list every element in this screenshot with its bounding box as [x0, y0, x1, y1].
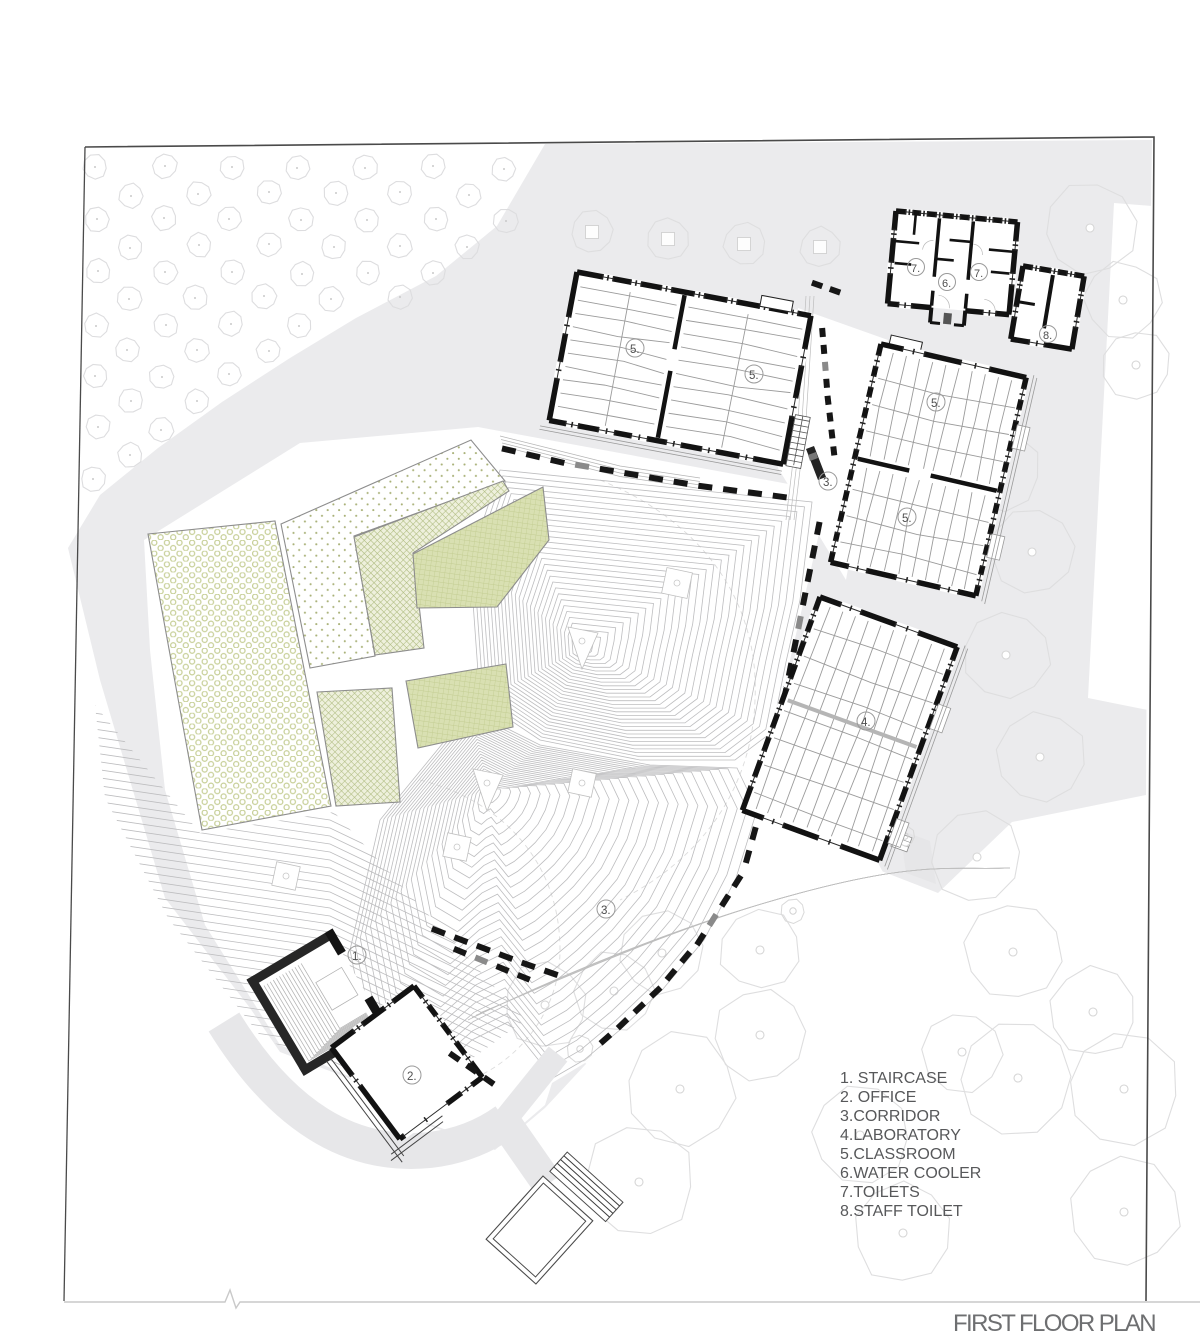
svg-text:5.: 5. — [902, 513, 912, 525]
svg-text:FIRST FLOOR PLAN: FIRST FLOOR PLAN — [953, 1310, 1155, 1337]
svg-text:4.LABORATORY: 4.LABORATORY — [840, 1127, 961, 1144]
svg-text:3.CORRIDOR: 3.CORRIDOR — [840, 1108, 940, 1125]
svg-text:5.: 5. — [630, 344, 640, 356]
svg-text:4.: 4. — [861, 717, 871, 729]
svg-text:7.: 7. — [911, 263, 920, 275]
svg-text:1.: 1. — [352, 951, 362, 963]
svg-text:3.: 3. — [601, 905, 611, 917]
svg-text:8.: 8. — [1043, 330, 1052, 342]
svg-text:6.: 6. — [942, 278, 951, 290]
svg-text:3.: 3. — [823, 477, 833, 489]
svg-text:2. OFFICE: 2. OFFICE — [840, 1089, 916, 1106]
svg-text:8.STAFF TOILET: 8.STAFF TOILET — [840, 1203, 963, 1220]
svg-text:1. STAIRCASE: 1. STAIRCASE — [840, 1070, 947, 1087]
svg-text:5.: 5. — [749, 370, 759, 382]
svg-text:6.WATER COOLER: 6.WATER COOLER — [840, 1165, 981, 1182]
svg-text:5.: 5. — [931, 398, 941, 410]
svg-text:2.: 2. — [407, 1071, 417, 1083]
svg-text:7.TOILETS: 7.TOILETS — [840, 1184, 920, 1201]
svg-text:5.CLASSROOM: 5.CLASSROOM — [840, 1146, 956, 1163]
svg-text:7.: 7. — [974, 268, 983, 280]
